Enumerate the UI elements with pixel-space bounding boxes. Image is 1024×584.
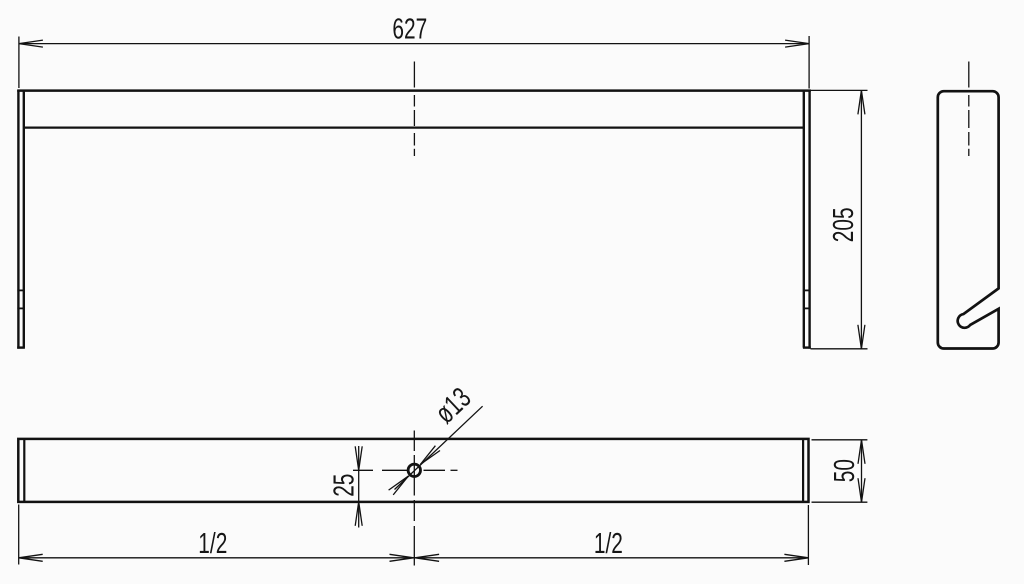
svg-text:50: 50 bbox=[829, 459, 861, 482]
svg-text:1/2: 1/2 bbox=[594, 528, 623, 560]
svg-text:1/2: 1/2 bbox=[198, 528, 227, 560]
svg-text:25: 25 bbox=[328, 474, 360, 497]
svg-text:627: 627 bbox=[392, 13, 427, 45]
svg-text:ø13: ø13 bbox=[429, 382, 477, 430]
svg-text:205: 205 bbox=[828, 207, 860, 242]
